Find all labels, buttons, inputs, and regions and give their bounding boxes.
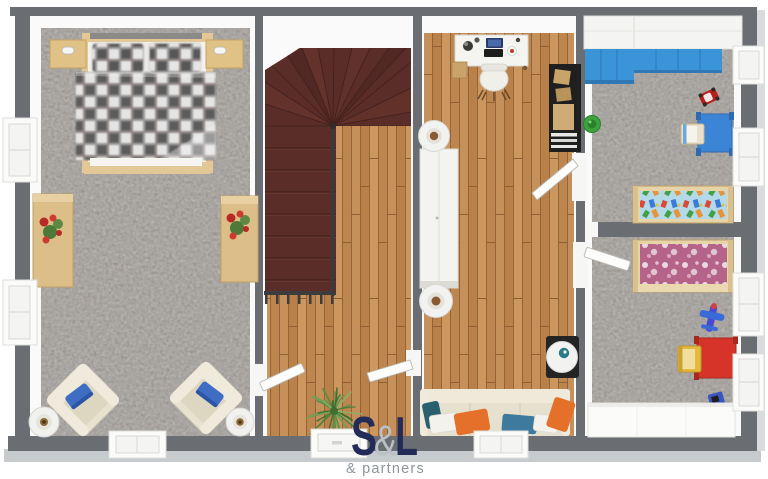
svg-text:& partners: & partners — [346, 461, 425, 477]
svg-text:&: & — [374, 417, 397, 465]
svg-text:L: L — [395, 405, 418, 467]
